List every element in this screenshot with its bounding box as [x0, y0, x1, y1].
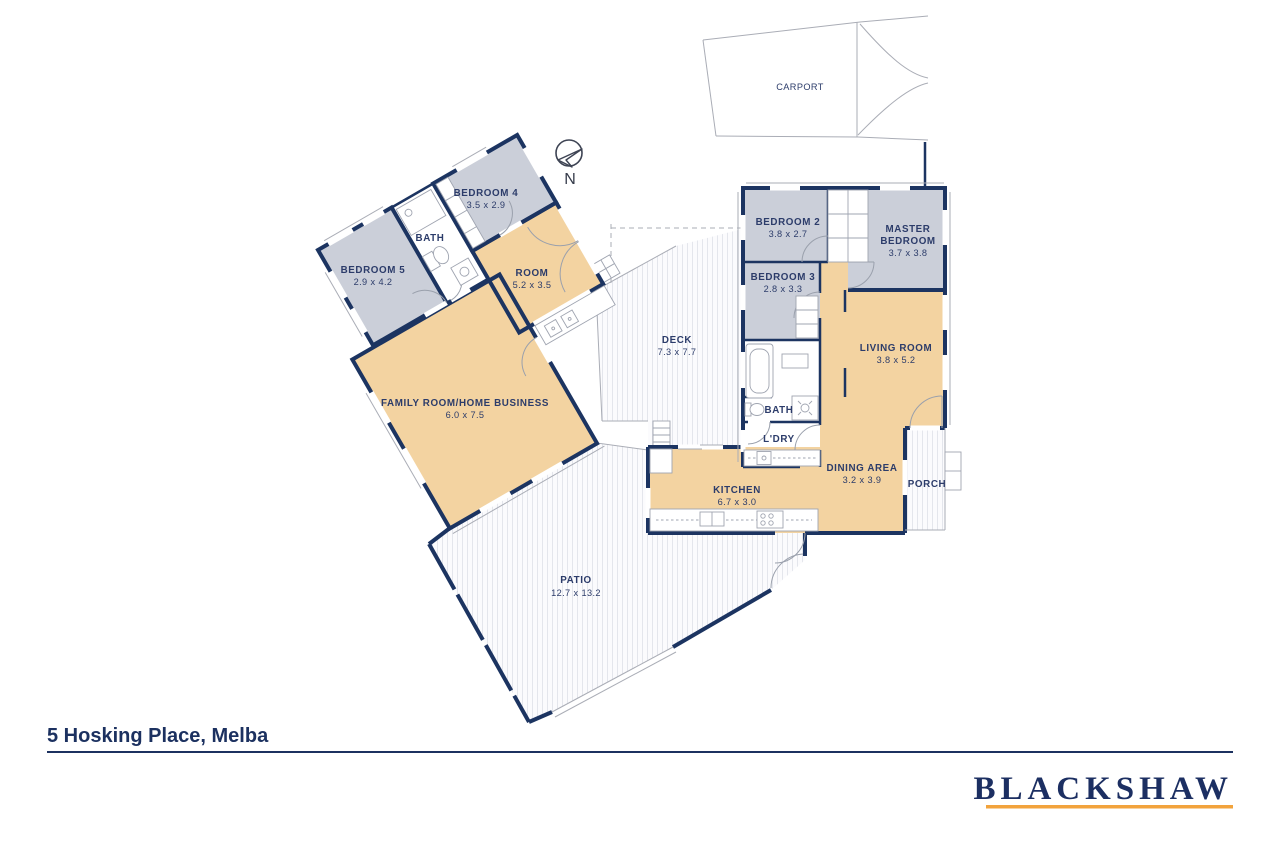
label-living: LIVING ROOM [860, 343, 932, 354]
address-title: 5 Hosking Place, Melba [47, 725, 269, 747]
laundry-fixtures [744, 450, 820, 466]
north-label: N [564, 171, 576, 188]
label-kitchen: KITCHEN [713, 485, 761, 496]
porch-window [945, 452, 961, 490]
dims-bedroom5: 2.9 x 4.2 [354, 277, 393, 287]
dims-family-room: 6.0 x 7.5 [446, 410, 485, 420]
label-room: ROOM [516, 268, 549, 279]
dims-master: 3.7 x 3.8 [889, 248, 928, 258]
dims-bedroom4: 3.5 x 2.9 [467, 200, 506, 210]
label-bedroom2: BEDROOM 2 [756, 217, 821, 228]
north-arrow-icon [556, 140, 582, 167]
floor-plan-svg: N [0, 0, 1280, 853]
brand-logo: BLACKSHAW [973, 771, 1233, 807]
dims-bedroom3: 2.8 x 3.3 [764, 284, 803, 294]
label-carport: CARPORT [776, 82, 824, 92]
dims-dining: 3.2 x 3.9 [843, 475, 882, 485]
label-bedroom5: BEDROOM 5 [341, 265, 406, 276]
hall2-floor [820, 262, 848, 430]
label-patio: PATIO [560, 575, 591, 586]
dims-patio: 12.7 x 13.2 [551, 588, 601, 598]
dims-living: 3.8 x 5.2 [877, 355, 916, 365]
carport-outline [703, 16, 928, 187]
dims-bedroom2: 3.8 x 2.7 [769, 229, 808, 239]
label-porch: PORCH [908, 479, 946, 490]
dims-deck: 7.3 x 7.7 [658, 347, 697, 357]
footer-divider [47, 751, 1233, 753]
label-dining: DINING AREA [826, 463, 897, 474]
brand-underline [986, 805, 1233, 809]
label-bath1: BATH [416, 233, 445, 244]
deck-stairs [653, 421, 670, 448]
label-deck: DECK [662, 335, 692, 346]
label-master-2: BEDROOM [880, 236, 935, 247]
label-bath2: BATH [765, 405, 794, 416]
label-family-room: FAMILY ROOM/HOME BUSINESS [381, 398, 549, 409]
dims-kitchen: 6.7 x 3.0 [718, 497, 757, 507]
label-bedroom4: BEDROOM 4 [454, 188, 519, 199]
dims-room: 5.2 x 3.5 [513, 280, 552, 290]
label-laundry: L'DRY [763, 434, 795, 445]
label-bedroom3: BEDROOM 3 [751, 272, 816, 283]
floorplan-page: N [0, 0, 1280, 853]
label-master-1: MASTER [886, 224, 931, 235]
